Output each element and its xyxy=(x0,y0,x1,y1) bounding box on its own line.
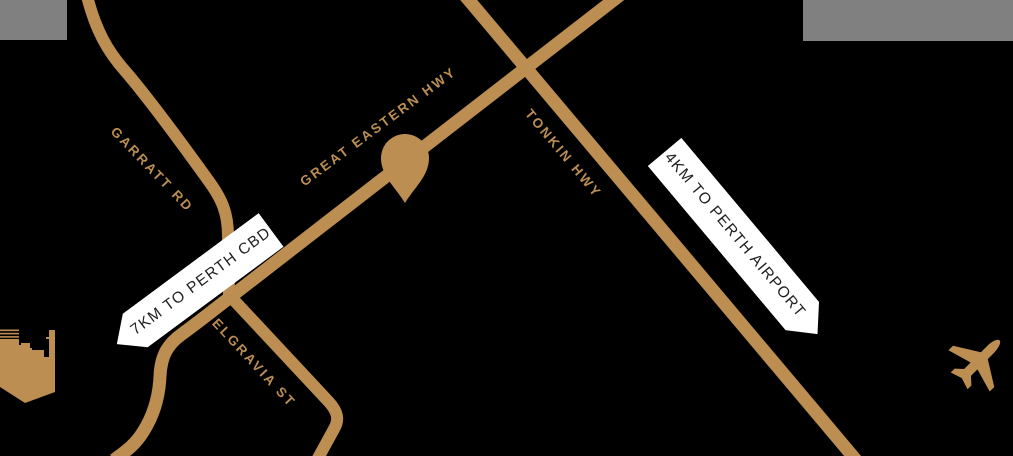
city-skyline-icon xyxy=(0,330,55,404)
road-great-eastern-hwy xyxy=(114,0,624,456)
road-network xyxy=(0,0,1013,456)
road-belgravia-st xyxy=(230,296,337,456)
locality-map: GARRATT RD GREAT EASTERN HWY TONKIN HWY … xyxy=(0,0,1013,456)
gray-block-top-right xyxy=(803,0,1013,41)
road-tonkin-hwy xyxy=(462,0,856,456)
location-pin-icon xyxy=(381,134,429,203)
airplane-icon xyxy=(939,320,1013,402)
gray-block-top-left xyxy=(0,0,67,40)
